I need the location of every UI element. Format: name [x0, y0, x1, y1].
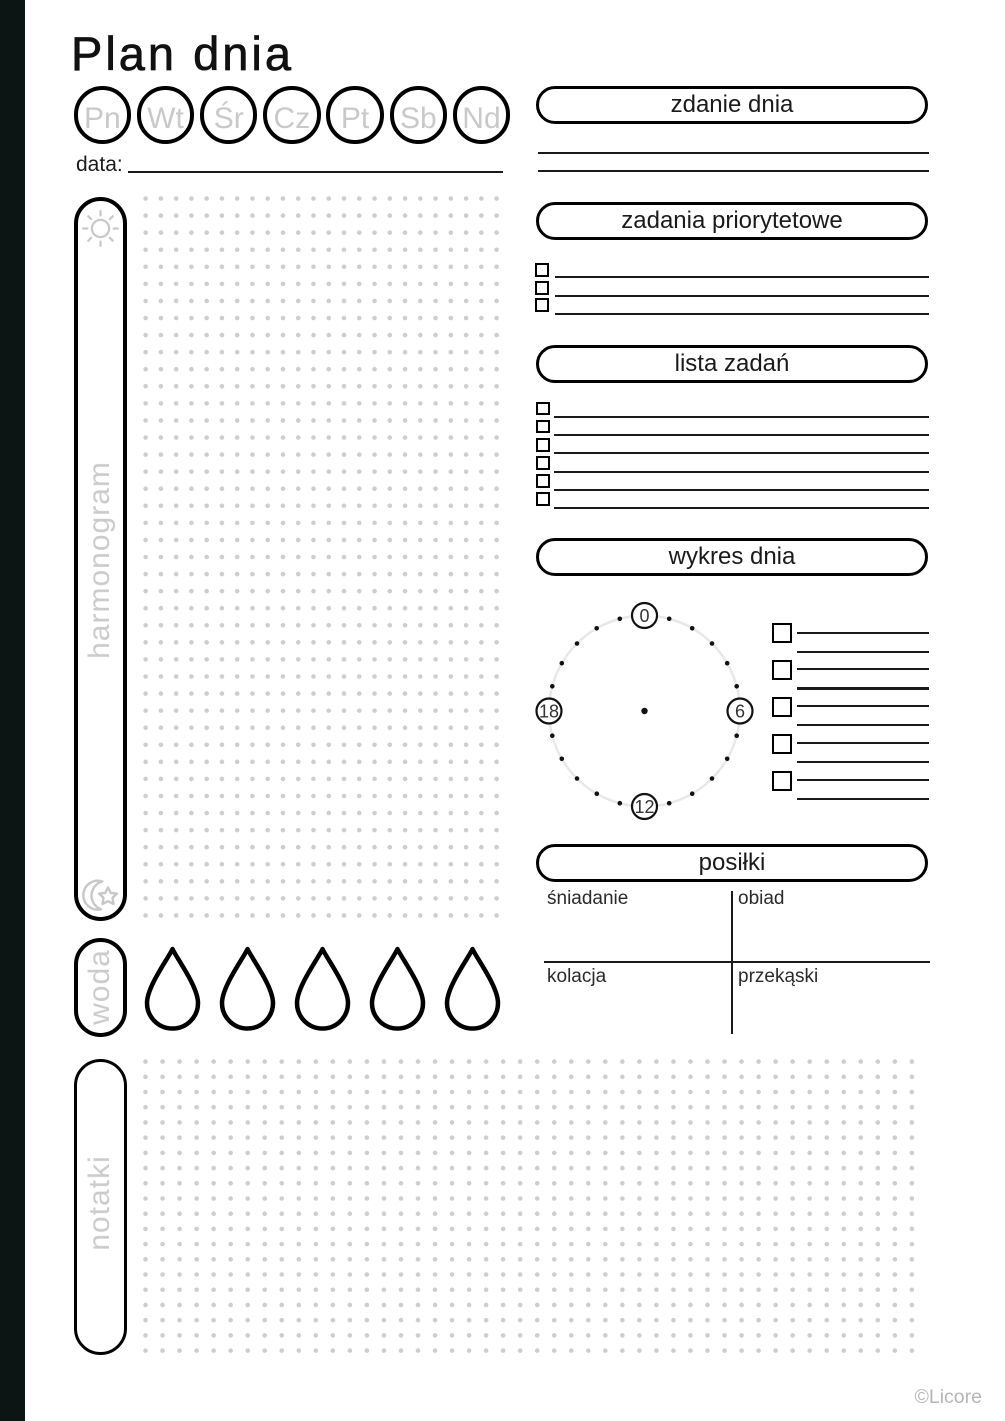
svg-text:6: 6 — [735, 702, 745, 722]
svg-text:12: 12 — [634, 797, 654, 817]
svg-text:0: 0 — [639, 606, 649, 626]
svg-text:18: 18 — [539, 702, 559, 722]
